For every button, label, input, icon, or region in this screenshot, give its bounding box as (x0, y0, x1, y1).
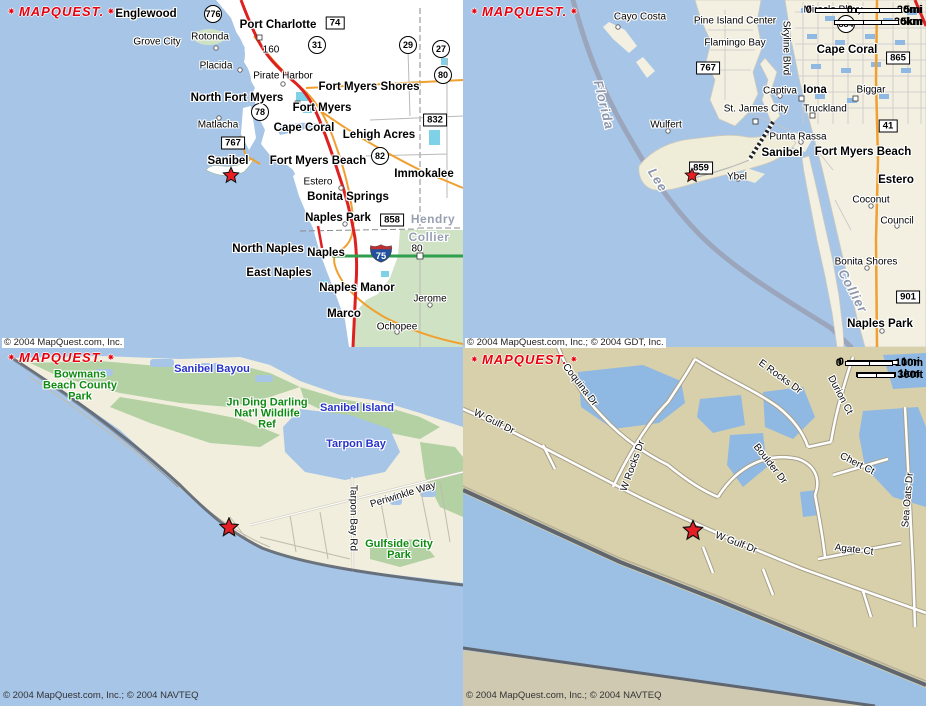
mapquest-logo: MAPQUEST. (8, 4, 115, 19)
copyright-notice: © 2004 MapQuest.com, Inc.; © 2004 NAVTEQ (466, 691, 661, 701)
map-sanibel-island[interactable] (0, 347, 463, 706)
mapquest-four-map-composite: EnglewoodPort CharlotteFort Myers Shores… (0, 0, 926, 706)
map-regional-overview[interactable] (0, 0, 463, 347)
scale-bar: 0100m 300ft (836, 357, 923, 381)
map-canvas-sanibel (0, 347, 463, 706)
mapquest-logo: MAPQUEST. (8, 350, 115, 365)
map-street-detail[interactable] (463, 347, 926, 706)
copyright-notice: © 2004 MapQuest.com, Inc.; © 2004 GDT, I… (465, 338, 666, 348)
mapquest-logo: MAPQUEST. (471, 352, 578, 367)
copyright-notice: © 2004 MapQuest.com, Inc. (2, 338, 124, 348)
map-islands-area[interactable] (463, 0, 926, 347)
map-canvas-overview (0, 0, 463, 347)
scale-bar: 05mi 5km (847, 4, 923, 28)
map-canvas-islands (463, 0, 926, 347)
map-canvas-streets (463, 347, 926, 706)
copyright-notice: © 2004 MapQuest.com, Inc.; © 2004 NAVTEQ (3, 691, 198, 701)
mapquest-logo: MAPQUEST. (471, 4, 578, 19)
